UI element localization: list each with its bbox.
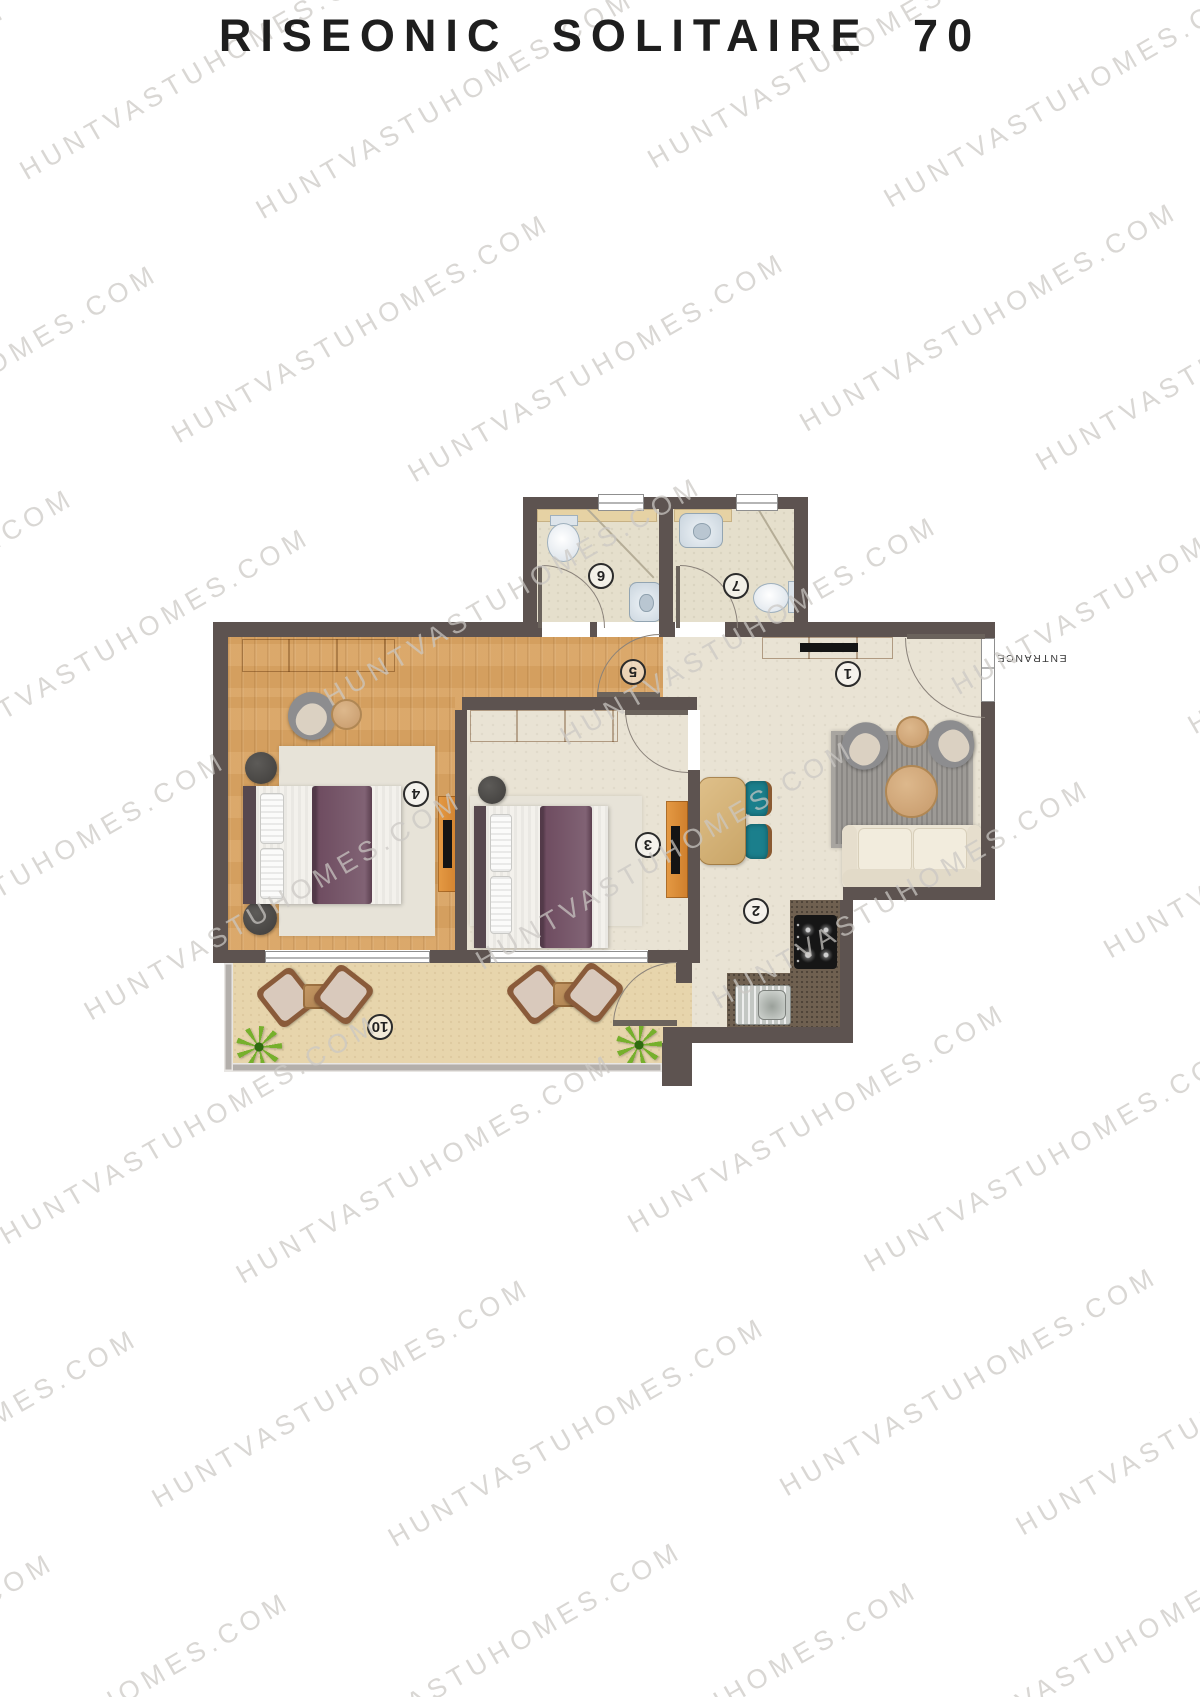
wardrobe	[242, 639, 395, 672]
dining-chair	[744, 781, 772, 816]
wall	[213, 622, 542, 637]
entrance-door-gap	[981, 638, 995, 702]
wardrobe	[470, 710, 618, 742]
door-leaf	[625, 710, 688, 715]
pillow	[490, 814, 512, 872]
room-number: 3	[644, 837, 652, 854]
room-number: 7	[732, 578, 740, 595]
tv	[671, 826, 680, 874]
door-leaf	[538, 566, 542, 628]
blanket	[540, 806, 592, 948]
wall	[840, 900, 853, 1043]
room-marker-balcony: 10	[367, 1014, 393, 1040]
balcony-plant	[616, 1024, 662, 1066]
wall	[523, 497, 537, 637]
door-leaf	[613, 1020, 677, 1026]
room-marker-master-bedroom: 4	[403, 781, 429, 807]
pillow	[490, 876, 512, 934]
room-number: 4	[412, 786, 420, 803]
balcony-parapet	[224, 963, 233, 1071]
wall	[663, 1027, 853, 1043]
room-number: 10	[372, 1019, 389, 1036]
wall	[981, 700, 995, 900]
room-marker-kitchen: 2	[743, 898, 769, 924]
sofa	[842, 825, 982, 889]
side-table	[331, 699, 362, 730]
balcony-parapet	[224, 1063, 662, 1072]
balcony-plant	[236, 1026, 282, 1068]
wall	[462, 697, 697, 710]
door-leaf	[676, 566, 680, 628]
wall	[659, 497, 673, 637]
bed	[474, 806, 608, 948]
room-marker-toilet2: 7	[723, 573, 749, 599]
toilet	[753, 583, 789, 613]
wall	[662, 1043, 692, 1086]
toilet	[547, 523, 580, 562]
room-marker-bedroom2: 3	[635, 832, 661, 858]
nightstand	[478, 776, 506, 804]
floor-plan: 1 2 3 4 5 6 7 10 ENTRANCE	[0, 0, 1200, 1697]
room-marker-toilet1: 6	[588, 563, 614, 589]
bathroom-sink	[679, 513, 723, 548]
headboard	[243, 786, 256, 904]
wall	[430, 950, 490, 963]
door-leaf	[907, 634, 985, 639]
nightstand	[245, 752, 277, 784]
room-number: 5	[629, 664, 637, 681]
headboard	[474, 806, 486, 948]
wall	[843, 887, 995, 900]
room-marker-entrance: 1	[835, 661, 861, 687]
wall	[455, 710, 467, 950]
coffee-table	[885, 765, 938, 818]
bed	[243, 786, 401, 904]
room-number: 2	[752, 903, 760, 920]
wall	[676, 963, 692, 983]
room-number: 6	[597, 568, 605, 585]
entrance-label: ENTRANCE	[996, 652, 1067, 664]
dining-chair	[744, 824, 772, 859]
bathroom-sink	[629, 582, 662, 622]
room-number: 1	[844, 666, 852, 683]
door-leaf	[597, 692, 660, 697]
sofa-back	[842, 869, 982, 889]
tv	[800, 643, 858, 652]
sink-basin	[758, 990, 786, 1020]
side-table	[896, 716, 929, 748]
room-marker-passage: 5	[620, 659, 646, 685]
kitchen-sink	[735, 985, 791, 1025]
wall	[688, 770, 700, 950]
pillow	[260, 793, 284, 844]
stove	[794, 915, 837, 969]
window	[490, 951, 648, 963]
sofa-cushion	[913, 828, 967, 872]
nightstand	[243, 901, 277, 935]
window	[736, 494, 778, 511]
page: RISEONIC SOLITAIRE 70	[0, 0, 1200, 1697]
wall	[794, 497, 808, 637]
window	[265, 951, 430, 963]
tv	[443, 820, 452, 868]
page-title: RISEONIC SOLITAIRE 70	[0, 10, 1200, 62]
window	[598, 494, 644, 511]
wall	[213, 622, 228, 963]
dining-table	[698, 777, 746, 865]
pillow	[260, 848, 284, 899]
blanket	[312, 786, 372, 904]
sofa-cushion	[858, 828, 912, 872]
